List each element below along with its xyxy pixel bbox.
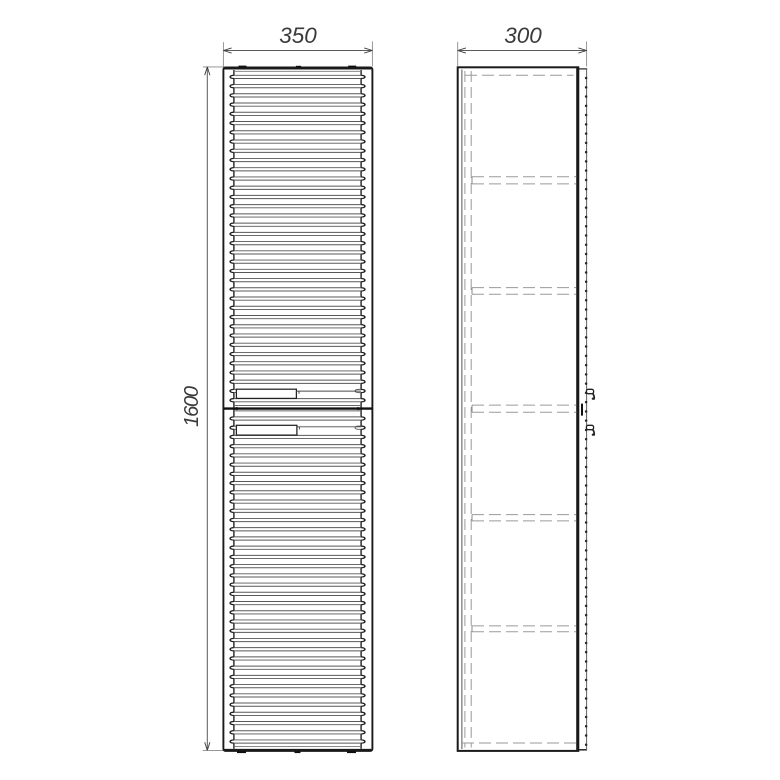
svg-text:1600: 1600 (181, 386, 203, 427)
svg-text:300: 300 (504, 23, 542, 48)
svg-text:350: 350 (279, 23, 317, 48)
